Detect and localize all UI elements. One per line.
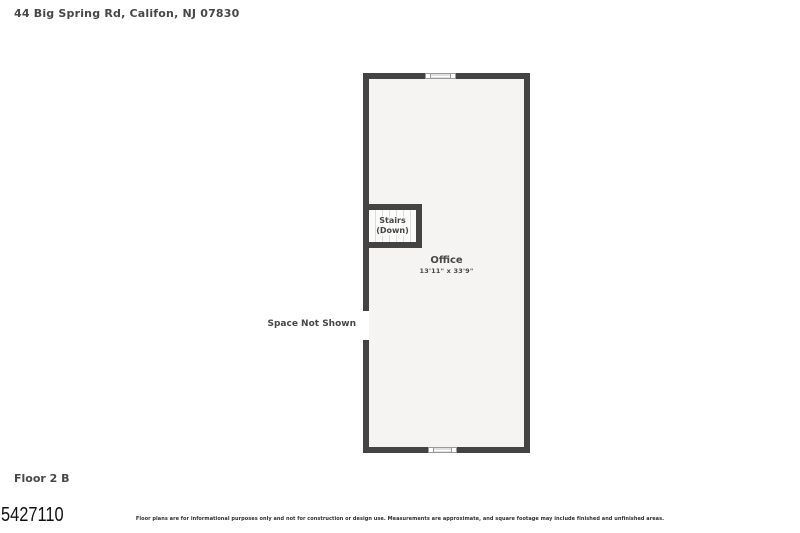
office-room-dimensions: 13'11" x 33'9" [369,267,524,276]
wall-opening [363,311,369,340]
space-not-shown-label: Space Not Shown [0,319,356,329]
floor-plan: Stairs (Down) Office 13'11" x 33'9" [363,73,530,453]
stairs-label-line2: (Down) [376,226,409,236]
stairs-area: Stairs (Down) [363,204,422,248]
stairs-label-line1: Stairs [376,216,409,226]
window-pane [433,448,452,452]
address-heading: 44 Big Spring Rd, Califon, NJ 07830 [14,7,240,20]
floor-label: Floor 2 B [14,472,70,485]
office-room-name: Office [369,255,524,267]
window-pane [430,74,451,78]
stairs-label: Stairs (Down) [376,216,409,236]
window-symbol-top [425,73,456,79]
disclaimer-text: Floor plans are for informational purpos… [0,516,800,522]
window-symbol-bottom [428,447,457,453]
office-label: Office 13'11" x 33'9" [369,255,524,276]
